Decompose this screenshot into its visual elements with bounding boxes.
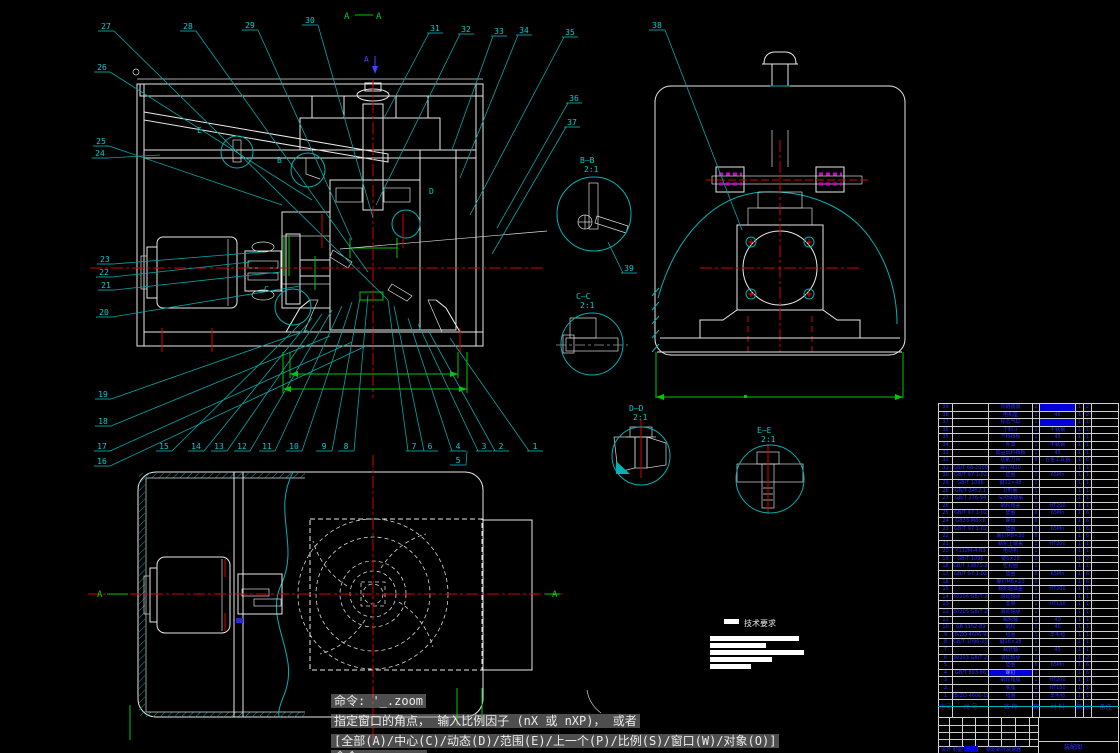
parts-cell-qty: 1 <box>1033 639 1040 646</box>
parts-cell-note <box>1092 662 1118 669</box>
parts-cell-note: 备注 <box>1092 700 1118 717</box>
parts-cell-no: 3 <box>939 677 953 684</box>
parts-table-row: 20Y112M-4-B3电动机111 <box>939 547 1118 555</box>
parts-cell-code <box>953 677 989 684</box>
parts-table-row: 2底座1HT15011 <box>939 684 1118 692</box>
parts-cell-code <box>953 586 989 593</box>
parts-cell-no: 1 <box>939 693 953 700</box>
parts-cell-qty: 1 <box>1033 693 1040 700</box>
parts-cell-note <box>1092 685 1118 692</box>
parts-cell-mat <box>1040 533 1076 540</box>
parts-cell-no: 7 <box>939 647 953 654</box>
callout-number: 15 <box>159 442 169 451</box>
parts-cell-unit: 1 <box>1076 556 1084 563</box>
parts-cell-unit: 1 <box>1076 617 1084 624</box>
parts-cell-note <box>1092 571 1118 578</box>
callout-number: 20 <box>99 308 109 317</box>
parts-cell-unit: 1 <box>1076 541 1084 548</box>
parts-cell-name: 键16×28 <box>989 639 1033 646</box>
parts-cell-name: 支架 <box>989 601 1033 608</box>
parts-table-row: 18GB/T 13871-92密封圈111 <box>939 562 1118 570</box>
command-line-echo[interactable]: 命令: '_.zoom <box>331 694 426 708</box>
parts-cell-mat <box>1040 488 1076 495</box>
callout-number: 19 <box>98 390 108 399</box>
section-letter: E <box>197 126 202 135</box>
parts-cell-note <box>1092 609 1118 616</box>
parts-table-row: 16螺钉M6×20616 <box>939 578 1118 586</box>
leader-line <box>114 31 388 300</box>
parts-cell-total: 6 <box>1084 670 1092 677</box>
parts-table-row: 39铰链装置212 <box>939 403 1118 411</box>
parts-cell-note <box>1092 594 1118 601</box>
parts-cell-total: 2 <box>1084 556 1092 563</box>
parts-cell-total: 6 <box>1084 662 1092 669</box>
parts-cell-unit: 1 <box>1076 579 1084 586</box>
parts-cell-no: 29 <box>939 480 953 487</box>
parts-table: 39铰链装置21238电机座1451237标志气缸11136下料斗1不锈钢113… <box>938 403 1119 753</box>
parts-cell-note <box>1092 510 1118 517</box>
parts-cell-qty: 1 <box>1033 488 1040 495</box>
parts-cell-note <box>1092 472 1118 479</box>
parts-cell-qty: 1 <box>1033 563 1040 570</box>
parts-cell-no: 24 <box>939 518 953 525</box>
parts-cell-unit: 1 <box>1076 563 1084 570</box>
parts-cell-qty: 数量 <box>1033 700 1040 717</box>
parts-cell-qty: 1 <box>1033 594 1040 601</box>
parts-table-row: 1JB/ZQ 4606-1997毡圈1羊毛毡11 <box>939 692 1118 700</box>
parts-cell-code <box>953 457 989 464</box>
parts-cell-mat: 不锈钢 <box>1040 442 1076 449</box>
parts-cell-qty: 1 <box>1033 427 1040 434</box>
callout-number: 26 <box>97 63 107 72</box>
parts-cell-unit: 1 <box>1076 434 1084 441</box>
parts-cell-code <box>953 617 989 624</box>
parts-cell-unit: 1 <box>1076 693 1084 700</box>
parts-cell-mat: 65Mn <box>1040 510 1076 517</box>
parts-cell-name: 电机座 <box>989 412 1033 419</box>
parts-table-row: 36下料斗1不锈钢11 <box>939 426 1118 434</box>
command-prompt-options: [全部(A)/中心(C)/动态(D)/范围(E)/上一个(P)/比例(S)/窗口… <box>331 734 779 748</box>
leader-line <box>418 324 478 451</box>
parts-cell-code: GB/T 97.1-02 <box>953 571 989 578</box>
parts-cell-note <box>1092 457 1118 464</box>
parts-cell-no: 12 <box>939 609 953 616</box>
parts-table-row: 22螺钉M8×30616 <box>939 532 1118 540</box>
detail-scale: 2:1 <box>584 165 599 174</box>
tech-req-line <box>710 643 766 648</box>
parts-cell-total: 总计 <box>1084 700 1092 717</box>
parts-cell-total: 1 <box>1084 541 1092 548</box>
parts-cell-name: 垫圈 <box>989 662 1033 669</box>
parts-cell-total: 1 <box>1084 693 1092 700</box>
parts-cell-unit: 1 <box>1076 480 1084 487</box>
parts-table-rows: 39铰链装置21238电机座1451237标志气缸11136下料斗1不锈钢113… <box>939 403 1118 717</box>
parts-cell-unit: 1 <box>1076 518 1084 525</box>
parts-cell-name: 垫圈 <box>989 510 1033 517</box>
parts-cell-qty: 6 <box>1033 510 1040 517</box>
parts-cell-note <box>1092 677 1118 684</box>
parts-cell-mat <box>1040 609 1076 616</box>
parts-cell-name: 底座 <box>989 685 1033 692</box>
leader-line <box>466 451 467 465</box>
parts-table-row: 9JB/ZQ 4606-97毡圈1羊毛毡11 <box>939 631 1118 639</box>
parts-table-row: 25GB/T 97.1-02垫圈665Mn16 <box>939 509 1118 517</box>
callout-number: 24 <box>95 149 105 158</box>
parts-cell-name: 密封圈 <box>989 563 1033 570</box>
annotation-layer: 2728293031323334353836372625242322212019… <box>92 16 804 513</box>
leader-line <box>470 37 564 215</box>
parts-cell-mat <box>1040 518 1076 525</box>
callout-number: 3 <box>482 442 487 451</box>
callout-number: 7 <box>412 442 417 451</box>
parts-cell-qty: 1 <box>1033 586 1040 593</box>
parts-cell-qty: 1 <box>1033 480 1040 487</box>
parts-cell-mat <box>1040 594 1076 601</box>
parts-cell-unit: 1 <box>1076 639 1084 646</box>
parts-cell-name: 标志气缸 <box>989 419 1033 426</box>
parts-cell-code: JB/ZQ 4606-1997 <box>953 693 989 700</box>
parts-table-row: 24GB33-M8×6螺母616 <box>939 517 1118 525</box>
parts-cell-unit: 1 <box>1076 548 1084 555</box>
parts-cell-total: 1 <box>1084 442 1092 449</box>
parts-cell-note <box>1092 434 1118 441</box>
parts-cell-unit: 1 <box>1076 647 1084 654</box>
parts-cell-unit: 1 <box>1076 427 1084 434</box>
parts-cell-code <box>953 442 989 449</box>
parts-table-row: 34外罩1不锈钢11 <box>939 441 1118 449</box>
parts-cell-note <box>1092 419 1118 426</box>
parts-cell-mat: HT200 <box>1040 503 1076 510</box>
leader-line <box>408 318 452 451</box>
parts-cell-code: GB/T 276-94 <box>953 495 989 502</box>
parts-cell-no: 26 <box>939 503 953 510</box>
tech-req-line <box>710 657 772 662</box>
parts-cell-no: 13 <box>939 601 953 608</box>
callout-number: 29 <box>245 21 255 30</box>
parts-cell-code: GB/T 13871-92 <box>953 563 989 570</box>
callout-number: 38 <box>652 21 662 30</box>
parts-cell-code <box>953 450 989 457</box>
parts-cell-code: GB/T 97.1-02 <box>953 472 989 479</box>
parts-cell-name: 切削刀片 <box>989 457 1033 464</box>
parts-cell-no: 5 <box>939 662 953 669</box>
plan-section-a-right: A <box>552 590 558 600</box>
parts-cell-name: 毡圈 <box>989 693 1033 700</box>
parts-cell-mat: 羊毛毡 <box>1040 693 1076 700</box>
callout-number: 17 <box>97 442 107 451</box>
parts-cell-code: 30203 GB/T 297-94 <box>953 655 989 662</box>
parts-cell-unit: 1 <box>1076 685 1084 692</box>
section-label-a1: A <box>344 12 350 22</box>
parts-cell-no: 15 <box>939 586 953 593</box>
parts-cell-no: 11 <box>939 617 953 624</box>
callout-number: 1 <box>533 442 538 451</box>
parts-cell-unit: 1 <box>1076 670 1084 677</box>
parts-cell-code <box>953 533 989 540</box>
parts-cell-total: 1 <box>1084 601 1092 608</box>
parts-table-row: 7蜗杆轴14511 <box>939 646 1118 654</box>
leader-line <box>275 306 342 451</box>
leader-line <box>109 146 282 205</box>
parts-cell-total: 1 <box>1084 639 1092 646</box>
parts-cell-no: 14 <box>939 594 953 601</box>
parts-cell-mat: 40 <box>1040 617 1076 624</box>
parts-cell-note <box>1092 639 1118 646</box>
parts-cell-name: 蜗轮上端盖 <box>989 541 1033 548</box>
parts-cell-qty: 6 <box>1033 526 1040 533</box>
parts-cell-total: 1 <box>1084 480 1092 487</box>
parts-cell-qty: 1 <box>1033 617 1040 624</box>
parts-cell-mat: 65Mn <box>1040 662 1076 669</box>
leader-line <box>112 262 250 277</box>
callout-number: 34 <box>519 26 529 35</box>
parts-cell-unit: 1 <box>1076 495 1084 502</box>
parts-cell-total: 1 <box>1084 503 1092 510</box>
parts-cell-no: 19 <box>939 556 953 563</box>
parts-table-row: 27GB/T 276-94深沟球轴承111 <box>939 494 1118 502</box>
parts-cell-total: 6 <box>1084 571 1092 578</box>
parts-cell-note <box>1092 556 1118 563</box>
parts-cell-mat: HT200 <box>1040 586 1076 593</box>
parts-cell-name: 垫圈 <box>989 526 1033 533</box>
callout-number: 27 <box>101 22 111 31</box>
parts-cell-qty: 6 <box>1033 571 1040 578</box>
parts-cell-no: 2 <box>939 685 953 692</box>
parts-cell-code <box>953 427 989 434</box>
parts-cell-note <box>1092 442 1118 449</box>
callout-number: 21 <box>101 281 111 290</box>
parts-cell-unit: 单件 <box>1076 700 1084 717</box>
parts-cell-mat: 40 <box>1040 624 1076 631</box>
callout-number: 23 <box>100 255 110 264</box>
callout-number: 6 <box>428 442 433 451</box>
parts-cell-code: JB/ZQ 4606-97 <box>953 632 989 639</box>
parts-cell-unit: 1 <box>1076 533 1084 540</box>
parts-cell-code: GB/T 1096 <box>953 556 989 563</box>
parts-cell-code: GB33-M8×6 <box>953 518 989 525</box>
parts-cell-no: 序号 <box>939 700 953 717</box>
parts-cell-no: 4 <box>939 670 953 677</box>
parts-cell-name: 垫圈 <box>989 472 1033 479</box>
parts-cell-note <box>1092 412 1118 419</box>
parts-cell-name: 螺母 <box>989 518 1033 525</box>
callout-number: 14 <box>191 442 201 451</box>
parts-cell-name: 蜗轮 <box>989 624 1033 631</box>
drawing-type: 装配图 <box>1064 745 1082 751</box>
callout-number: 28 <box>183 22 193 31</box>
callout-number: 30 <box>305 16 315 25</box>
parts-table-row: 32切削刀片8合金工具钢18 <box>939 456 1118 464</box>
parts-cell-note <box>1092 586 1118 593</box>
leader-line <box>318 25 373 218</box>
drawing-name: 蜗轮蜗杆减速器 <box>986 747 1021 753</box>
parts-cell-qty: 1 <box>1033 419 1040 426</box>
parts-cell-qty: 8 <box>1033 457 1040 464</box>
parts-cell-qty: 1 <box>1033 434 1040 441</box>
parts-table-row: 3蜗轮箱座1HT20011 <box>939 676 1118 684</box>
parts-cell-no: 37 <box>939 419 953 426</box>
parts-table-row: 31GB/T 68-2000螺钉M30111 <box>939 464 1118 472</box>
parts-cell-name: 蜗轮箱座 <box>989 677 1033 684</box>
parts-table-row: 23GB/T 97.1-02垫圈665Mn16 <box>939 525 1118 533</box>
parts-cell-name: 螺钉 <box>989 670 1033 677</box>
parts-cell-unit: 1 <box>1076 510 1084 517</box>
parts-cell-qty: 1 <box>1033 541 1040 548</box>
section-label-a2: A <box>376 12 382 22</box>
parts-cell-total: 6 <box>1084 526 1092 533</box>
callout-number: 33 <box>494 27 504 36</box>
parts-cell-total: 1 <box>1084 488 1092 495</box>
parts-cell-qty: 1 <box>1033 677 1040 684</box>
parts-cell-note <box>1092 563 1118 570</box>
parts-cell-code <box>953 503 989 510</box>
parts-cell-mat <box>1040 556 1076 563</box>
parts-cell-no: 23 <box>939 526 953 533</box>
parts-cell-code <box>953 412 989 419</box>
parts-cell-unit: 1 <box>1076 609 1084 616</box>
parts-cell-mat: HT200 <box>1040 677 1076 684</box>
detail-view-c <box>556 318 628 353</box>
parts-cell-name: 螺钉M30 <box>989 465 1033 472</box>
parts-cell-note <box>1092 526 1118 533</box>
parts-cell-note <box>1092 404 1118 411</box>
parts-cell-mat <box>1040 404 1076 411</box>
parts-cell-note <box>1092 693 1118 700</box>
parts-cell-mat <box>1040 639 1076 646</box>
parts-table-row: 630203 GB/T 297-94滚动轴承212 <box>939 654 1118 662</box>
parts-cell-name: 键6×28 <box>989 556 1033 563</box>
callout-number: 16 <box>97 457 107 466</box>
parts-cell-name: 滚动轴承 <box>989 594 1033 601</box>
parts-cell-no: 35 <box>939 434 953 441</box>
parts-cell-qty: 1 <box>1033 548 1040 555</box>
parts-cell-qty: 1 <box>1033 442 1040 449</box>
parts-cell-qty: 1 <box>1033 685 1040 692</box>
callout-number: 36 <box>569 94 579 103</box>
parts-cell-mat <box>1040 563 1076 570</box>
parts-cell-no: 39 <box>939 404 953 411</box>
detail-circle <box>557 177 631 251</box>
parts-cell-no: 18 <box>939 563 953 570</box>
leader-line <box>608 242 623 273</box>
parts-cell-mat: 羊毛毡 <box>1040 632 1076 639</box>
parts-cell-name: 名 称 <box>989 700 1033 717</box>
parts-table-row: 4GB/T 893-86螺钉116 <box>939 669 1118 677</box>
parts-cell-qty: 1 <box>1033 632 1040 639</box>
parts-cell-qty: 1 <box>1033 670 1040 677</box>
plan-section-a-left: A <box>97 590 103 600</box>
parts-cell-unit: 1 <box>1076 624 1084 631</box>
parts-cell-mat <box>1040 655 1076 662</box>
parts-cell-total: 2 <box>1084 655 1092 662</box>
parts-cell-qty: 6 <box>1033 579 1040 586</box>
parts-cell-code <box>953 419 989 426</box>
parts-cell-name: 蜗杆轴 <box>989 647 1033 654</box>
parts-cell-note <box>1092 503 1118 510</box>
parts-cell-total: 6 <box>1084 579 1092 586</box>
parts-cell-unit: 1 <box>1076 419 1084 426</box>
parts-cell-note <box>1092 541 1118 548</box>
parts-cell-unit: 1 <box>1076 571 1084 578</box>
parts-table-row: 11蜗轮轴14011 <box>939 616 1118 624</box>
parts-cell-total: 1 <box>1084 548 1092 555</box>
parts-cell-unit: 1 <box>1076 601 1084 608</box>
parts-table-row: 29GB/T 1096键12×48111 <box>939 479 1118 487</box>
parts-cell-total: 1 <box>1084 419 1092 426</box>
parts-cell-unit: 1 <box>1076 526 1084 533</box>
parts-cell-code <box>953 579 989 586</box>
parts-cell-qty: 2 <box>1033 556 1040 563</box>
parts-cell-total: 1 <box>1084 495 1092 502</box>
parts-cell-qty: 6 <box>1033 533 1040 540</box>
parts-cell-note <box>1092 495 1118 502</box>
parts-cell-qty: 1 <box>1033 601 1040 608</box>
leader-line <box>428 330 495 451</box>
section-arrow-label: A <box>364 55 369 64</box>
parts-table-row: 1230205 GB/T 297-94滚动轴承111 <box>939 608 1118 616</box>
parts-cell-unit: 1 <box>1076 677 1084 684</box>
parts-cell-total: 1 <box>1084 632 1092 639</box>
parts-cell-qty: 6 <box>1033 662 1040 669</box>
leader-line <box>460 35 518 178</box>
side-view <box>652 52 905 400</box>
parts-cell-unit: 1 <box>1076 404 1084 411</box>
parts-cell-no: 22 <box>939 533 953 540</box>
parts-cell-note <box>1092 465 1118 472</box>
parts-cell-mat <box>1040 670 1076 677</box>
parts-cell-no: 34 <box>939 442 953 449</box>
parts-cell-mat <box>1040 495 1076 502</box>
parts-cell-mat: 45 <box>1040 647 1076 654</box>
parts-table-row: 21蜗轮上端盖1HT20011 <box>939 540 1118 548</box>
parts-cell-no: 17 <box>939 571 953 578</box>
callout-number: 18 <box>98 417 108 426</box>
parts-cell-no: 8 <box>939 639 953 646</box>
parts-cell-unit: 1 <box>1076 503 1084 510</box>
parts-table-header: 序号代 号名 称数量材 料单件总计备注 <box>939 699 1118 717</box>
parts-table-row: 5垫圈665Mn16 <box>939 661 1118 669</box>
parts-table-row: 30GB/T 97.1-02垫圈165Mn11 <box>939 471 1118 479</box>
parts-cell-qty: 2 <box>1033 655 1040 662</box>
tech-req-line <box>710 650 804 655</box>
leader-line <box>110 342 352 451</box>
parts-cell-code <box>953 662 989 669</box>
parts-cell-note <box>1092 480 1118 487</box>
parts-table-row: 8GB/T 1096-2003键16×28111 <box>939 638 1118 646</box>
parts-cell-total: 8 <box>1084 457 1092 464</box>
parts-cell-unit: 1 <box>1076 488 1084 495</box>
parts-cell-mat: 45 <box>1040 450 1076 457</box>
parts-cell-no: 16 <box>939 579 953 586</box>
parts-cell-total: 2 <box>1084 412 1092 419</box>
detail-view-d <box>614 420 666 478</box>
parts-table-row: 1430206 GB/T 297-94滚动轴承111 <box>939 593 1118 601</box>
command-prompt-1: 指定窗口的角点， 输入比例因子 (nX 或 nXP)， 或者 <box>331 714 640 728</box>
detail-scale: 2:1 <box>633 413 648 422</box>
leader-line <box>492 127 566 254</box>
parts-cell-unit: 1 <box>1076 594 1084 601</box>
parts-cell-total: 1 <box>1084 685 1092 692</box>
parts-cell-qty: 1 <box>1033 450 1040 457</box>
autocad-viewport: { "markers": { "a1": "A", "a2": "A", "ar… <box>0 0 1120 753</box>
parts-cell-name: 滚动轴承 <box>989 609 1033 616</box>
parts-cell-note <box>1092 579 1118 586</box>
parts-cell-qty: 2 <box>1033 404 1040 411</box>
parts-cell-unit: 1 <box>1076 655 1084 662</box>
parts-cell-note <box>1092 548 1118 555</box>
parts-table-row: 17GB/T 97.1-02垫圈665Mn16 <box>939 570 1118 578</box>
detail-label: E—E <box>757 426 772 435</box>
